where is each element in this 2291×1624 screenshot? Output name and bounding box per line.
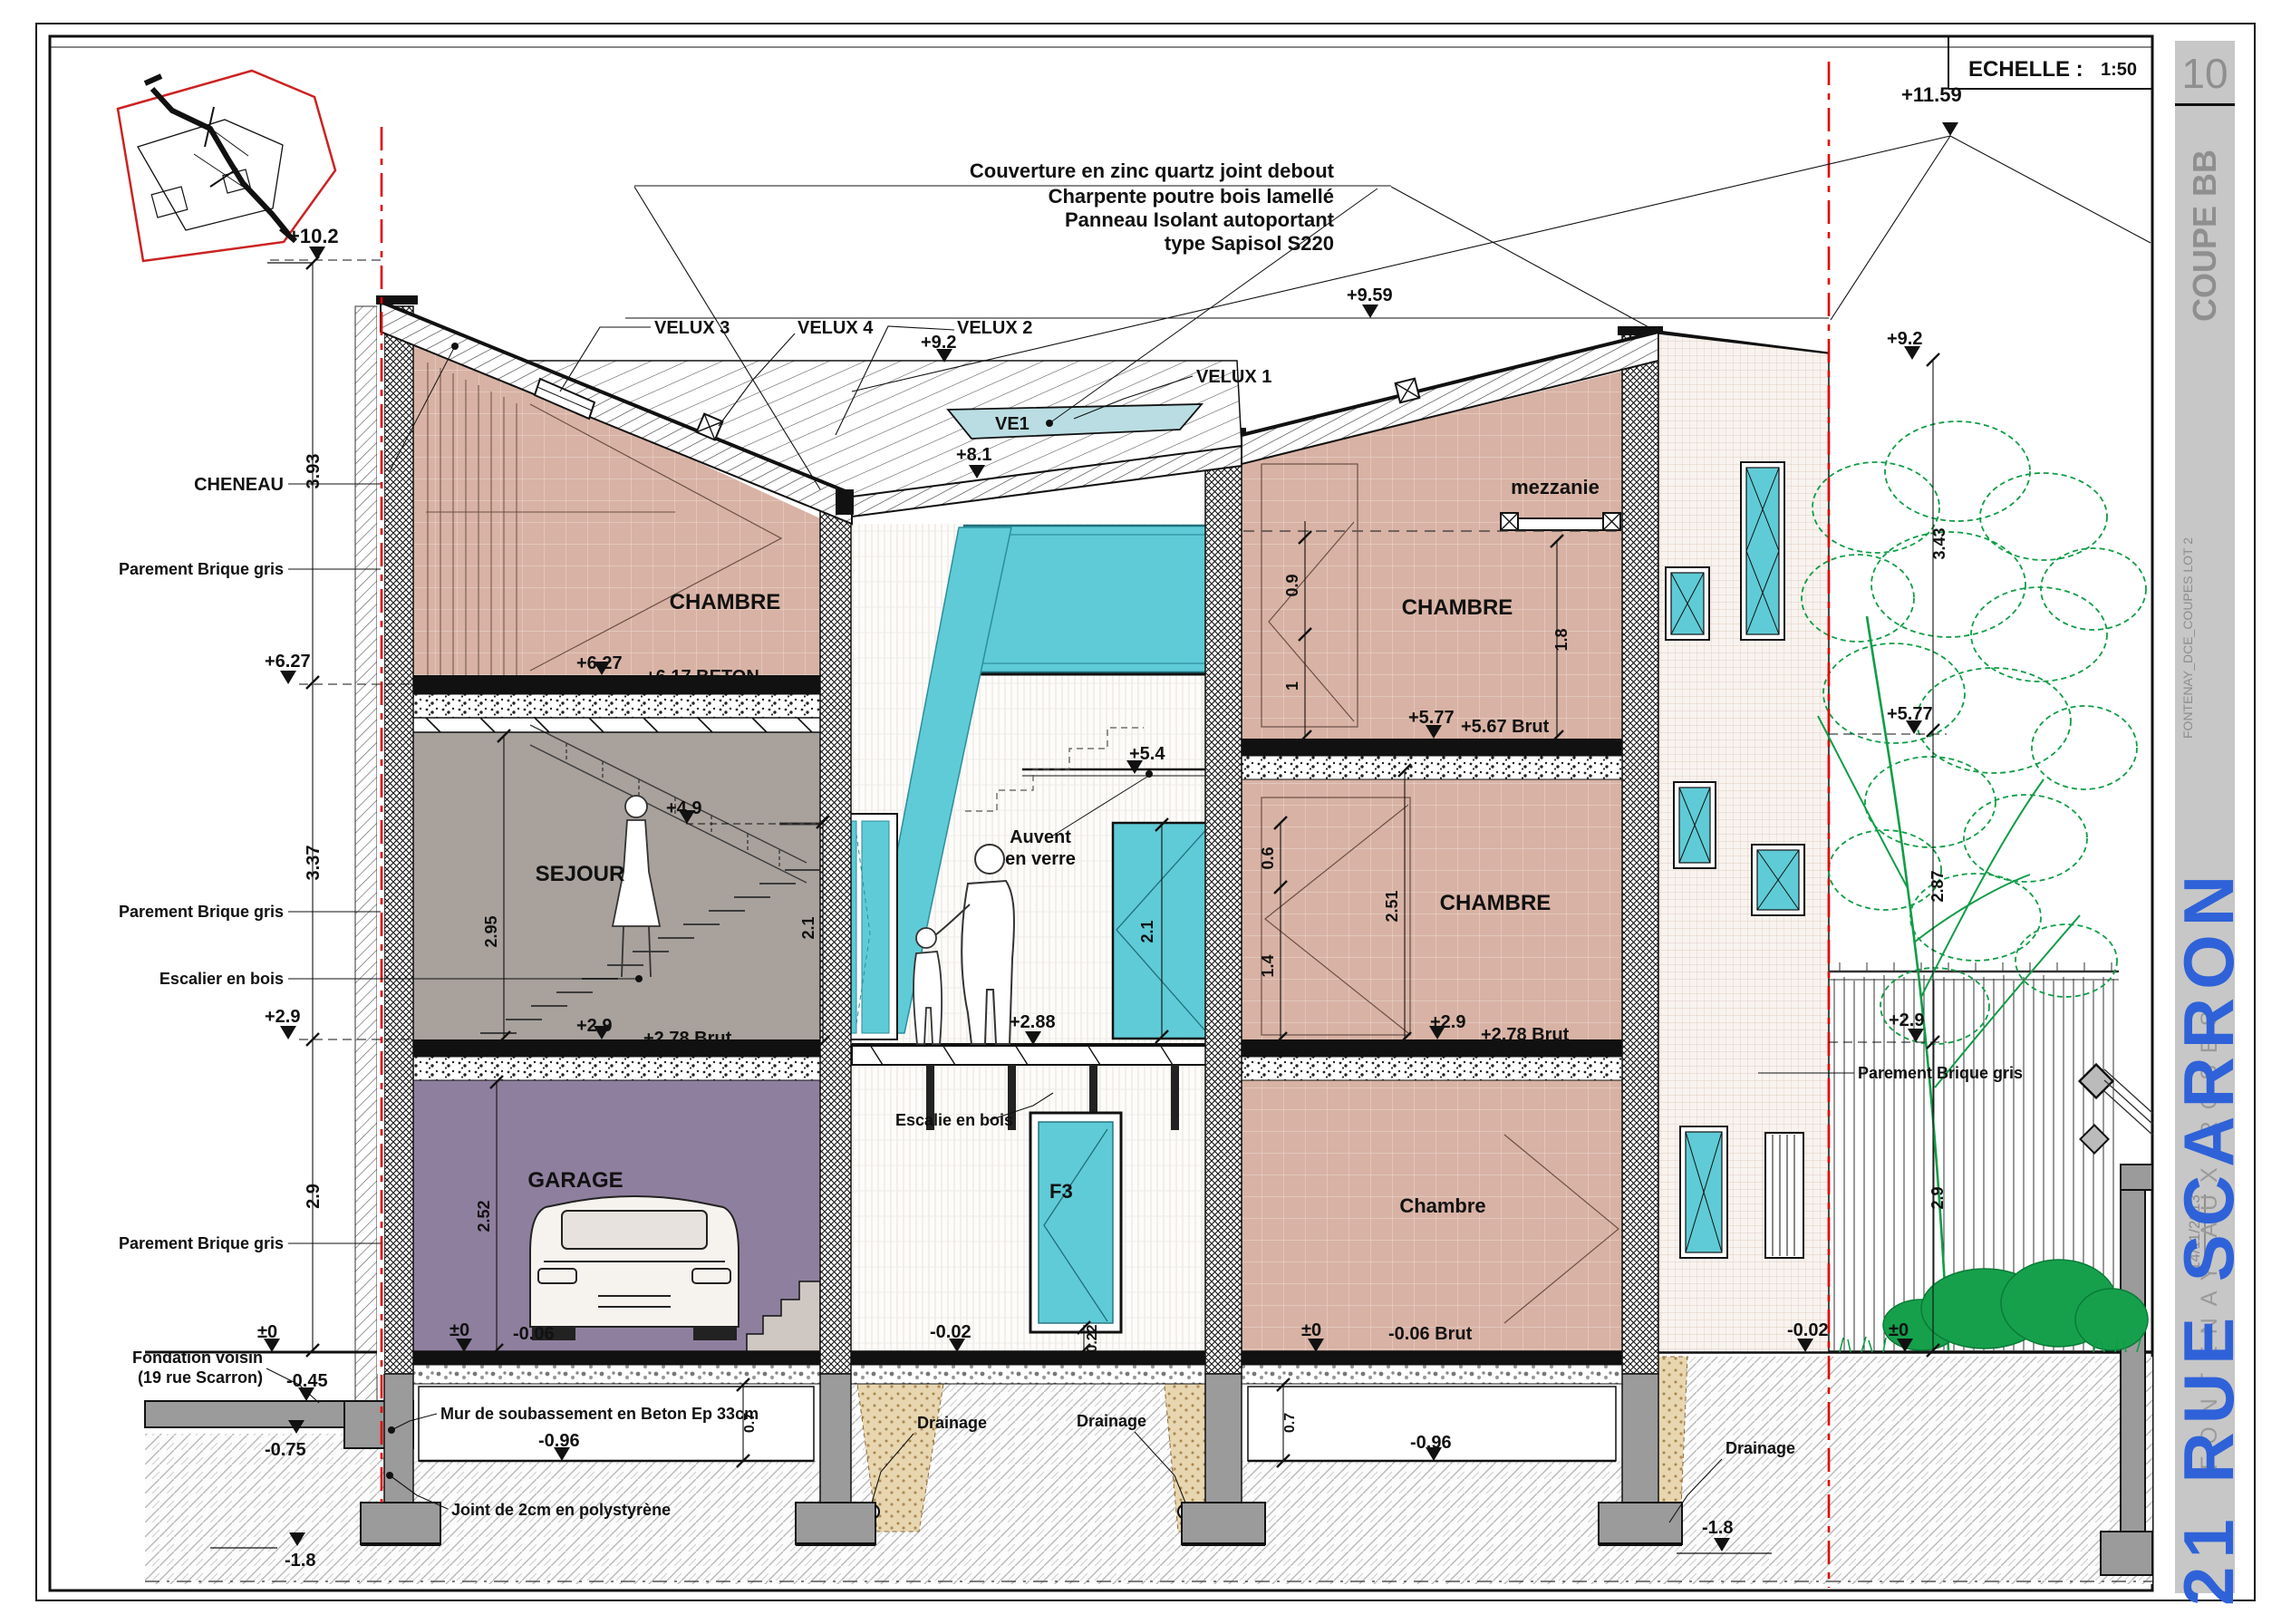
- lvl-m002-r: -0.02: [1787, 1320, 1829, 1340]
- velux2-label: VELUX 2: [957, 318, 1032, 338]
- callout-cheneau: CHENEAU: [194, 475, 284, 495]
- lvl-0-right: ±0: [1301, 1320, 1321, 1340]
- door-f3: F3: [1030, 1113, 1121, 1332]
- lvl-2-9-margin: +2.9: [265, 1007, 300, 1027]
- lvl-m18-l: -1.8: [285, 1551, 315, 1571]
- callout-parement-4: Parement Brique gris: [1858, 1064, 2023, 1082]
- project-address: 21 RUE SCARRON: [2168, 867, 2250, 1606]
- label-chambre-tr: CHAMBRE: [1402, 595, 1513, 620]
- lvl-m006: -0.06: [513, 1324, 555, 1344]
- callout-parement-3: Parement Brique gris: [119, 1234, 284, 1252]
- dim-1-8: 1.8: [1552, 628, 1571, 651]
- lvl-8-1: +8.1: [956, 445, 991, 465]
- callout-escalier: Escalier en bois: [159, 970, 284, 988]
- dim-0-6: 0.6: [1259, 846, 1277, 869]
- roof-note-line3: Panneau Isolant autoportant: [1065, 208, 1335, 231]
- section-drawing: ECHELLE : 1:50: [0, 0, 2291, 1624]
- label-sejour: SEJOUR: [536, 862, 625, 886]
- callout-drainage-1: Drainage: [917, 1414, 987, 1432]
- scale-value: 1:50: [2101, 60, 2137, 80]
- roof-note-line2: Charpente poutre bois lamellé: [1049, 185, 1334, 208]
- lvl-9-2-right: +9.2: [1887, 329, 1922, 349]
- label-chambre-tl: CHAMBRE: [670, 590, 781, 614]
- velux4-label: VELUX 4: [797, 318, 874, 338]
- lvl-6-17: +6.17 BETON: [645, 667, 759, 687]
- window-2-1: [1113, 823, 1213, 1039]
- label-chambre-br: Chambre: [1399, 1194, 1485, 1217]
- dim-2-52: 2.52: [475, 1200, 493, 1232]
- scale-label: ECHELLE :: [1968, 57, 2083, 82]
- courtyard: F3: [825, 524, 1242, 1352]
- right-facade: [1658, 333, 1829, 1352]
- callout-parement-2: Parement Brique gris: [119, 903, 284, 921]
- lvl-6-27-margin: +6.27: [265, 652, 311, 672]
- callout-drainage-3: Drainage: [1725, 1439, 1795, 1457]
- label-chambre-mr: CHAMBRE: [1440, 891, 1551, 915]
- label-auvent-2: en verre: [1005, 849, 1076, 869]
- callout-drainage-2: Drainage: [1077, 1412, 1146, 1430]
- lvl-10-2: +10.2: [288, 225, 339, 247]
- ve1-label: VE1: [995, 414, 1029, 434]
- label-garage: GARAGE: [527, 1168, 623, 1193]
- drawing-sheet: ECHELLE : 1:50: [0, 0, 2291, 1624]
- lvl-11-59: +11.59: [1901, 83, 1962, 106]
- dim-2-51: 2.51: [1383, 890, 1401, 922]
- callout-fondation-1: Fondation voisin: [132, 1348, 263, 1367]
- door-f3-label: F3: [1049, 1180, 1073, 1203]
- dim-2-87: 2.87: [1928, 870, 1947, 902]
- velux3-label: VELUX 3: [654, 318, 730, 338]
- lvl-m006-brut: -0.06 Brut: [1388, 1324, 1473, 1344]
- callout-parement-1: Parement Brique gris: [119, 560, 284, 578]
- dim-2-9-l: 2.9: [304, 1184, 324, 1209]
- callout-joint: Joint de 2cm en polystyrène: [451, 1501, 671, 1519]
- cheneau-gutter: [836, 489, 854, 515]
- velux-roof-box-right: [1396, 379, 1420, 403]
- lvl-m075: -0.75: [265, 1440, 306, 1460]
- lvl-2-9-far: +2.9: [1889, 1010, 1924, 1030]
- dim-0-7-r: 0.7: [1282, 1413, 1298, 1433]
- dim-2-9-r: 2.9: [1928, 1186, 1947, 1209]
- sheet-title: COUPE BB: [2186, 150, 2224, 322]
- roof-note-line1: Couverture en zinc quartz joint debout: [970, 159, 1335, 182]
- lvl-0-garden: ±0: [1889, 1320, 1909, 1340]
- roof-note-line4: type Sapisol S220: [1165, 232, 1334, 255]
- label-mezzanine: mezzanie: [1511, 476, 1600, 498]
- lvl-m18-r: -1.8: [1702, 1518, 1733, 1538]
- dim-0-9: 0.9: [1283, 574, 1301, 596]
- label-auvent-1: Auvent: [1010, 827, 1071, 847]
- lvl-9-59: +9.59: [1347, 285, 1393, 305]
- car: [530, 1196, 739, 1339]
- sheet-number: 10: [2175, 43, 2235, 106]
- dim-3-37: 3.37: [304, 846, 324, 881]
- dim-1: 1: [1283, 681, 1301, 691]
- dim-2-1-stair: 2.1: [799, 916, 817, 939]
- callout-mur-soubassement: Mur de soubassement en Beton Ep 33cm: [440, 1405, 759, 1423]
- lvl-5-77: +5.77: [1408, 708, 1455, 728]
- dim-1-4: 1.4: [1259, 954, 1277, 977]
- lvl-2-88: +2.88: [1010, 1012, 1056, 1032]
- callout-escalie: Escalie en bois: [895, 1111, 1013, 1129]
- lvl-5-67: +5.67 Brut: [1461, 717, 1550, 737]
- file-reference: FONTENAY_DCE_COUPES LOT 2: [2180, 537, 2195, 739]
- handrail-post: [2080, 1065, 2152, 1154]
- dim-2-95: 2.95: [482, 915, 500, 947]
- lvl-2-78-r: +2.78 Brut: [1481, 1025, 1570, 1045]
- dim-3-43: 3.43: [1930, 527, 1948, 559]
- callout-fondation-2: (19 rue Scarron): [138, 1368, 263, 1387]
- dim-0-22: 0.22: [1085, 1324, 1100, 1352]
- roof-note: Couverture en zinc quartz joint debout C…: [970, 159, 1335, 255]
- lvl-2-78-left: +2.78 Brut: [643, 1029, 732, 1049]
- velux1-label: VELUX 1: [1196, 367, 1271, 387]
- lvl-0-garage: ±0: [449, 1320, 469, 1340]
- dim-2-1-window: 2.1: [1138, 920, 1156, 942]
- bush: [1883, 1260, 2148, 1350]
